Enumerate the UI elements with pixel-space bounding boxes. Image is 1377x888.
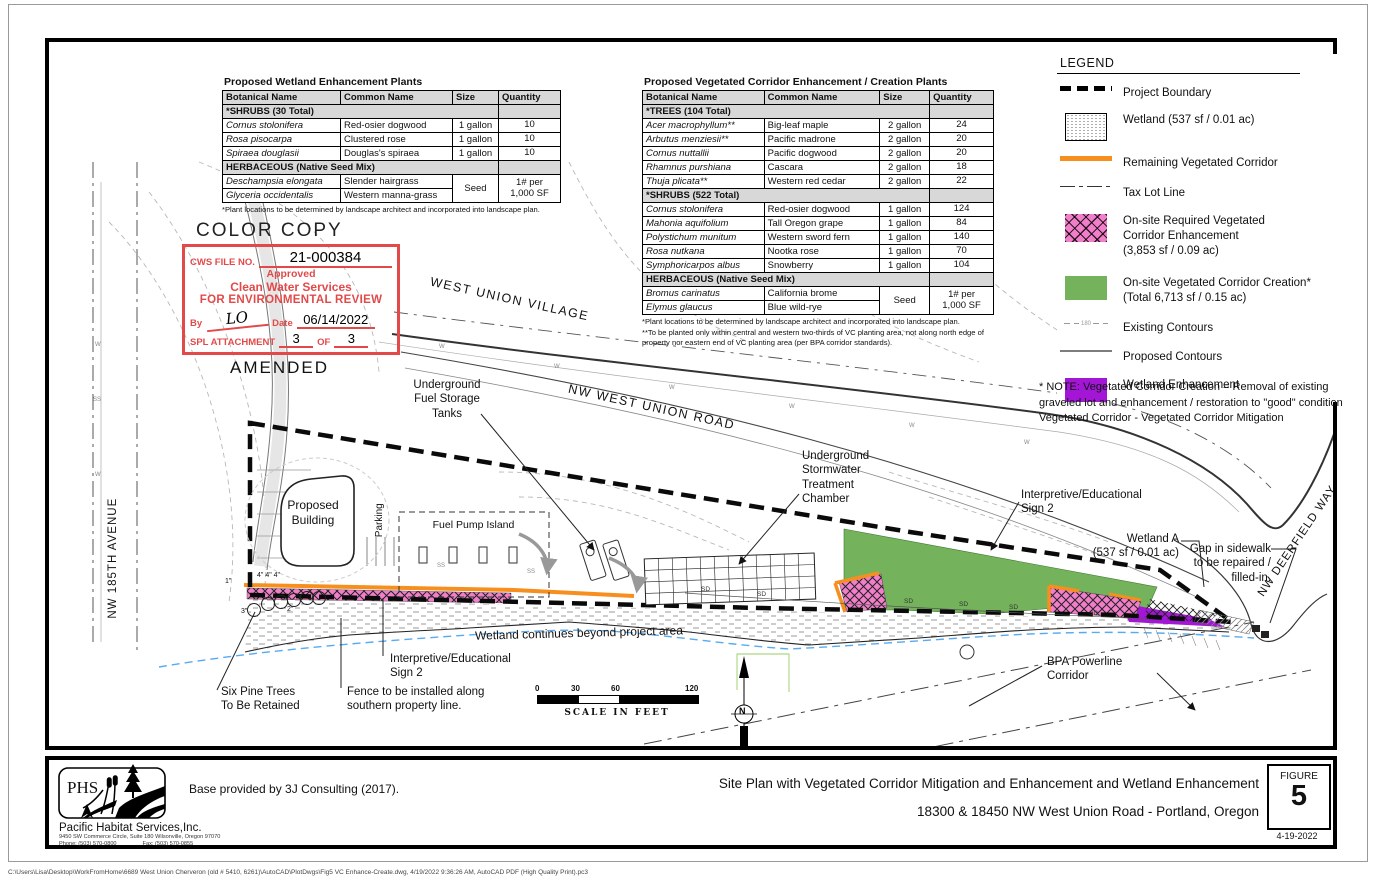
label-stormwater-chamber: Underground Stormwater Treatment Chamber: [802, 449, 912, 507]
plant-row: Rosa nutkanaNootka rose1 gallon70: [643, 245, 994, 259]
north-arrow: [731, 656, 757, 746]
plant-quantity: 70: [930, 245, 994, 259]
wetland-plants-panel: Proposed Wetland Enhancement Plants Bota…: [222, 76, 567, 214]
plant-size: 2 gallon: [880, 175, 930, 189]
plant-quantity: 18: [930, 161, 994, 175]
plant-quantity: 10: [499, 147, 561, 161]
column-header: Quantity: [499, 91, 561, 105]
common-name: Snowberry: [764, 259, 880, 273]
legend-item: Project Boundary: [1057, 86, 1362, 101]
cws-file-label: CWS FILE NO.: [190, 257, 255, 268]
legend-item-label: Remaining Vegetated Corridor: [1123, 156, 1278, 171]
plan-marker-ss: SS: [93, 397, 101, 403]
column-header: Botanical Name: [223, 91, 341, 105]
proposed-contours-swatch: [1057, 350, 1115, 352]
legend-item: On-site Required Vegetated Corridor Enha…: [1057, 214, 1362, 259]
stamp-agency: Clean Water Services: [190, 281, 392, 294]
scale-bar: 0 30 60 120 SCALE IN FEET: [537, 684, 707, 724]
botanical-name: Cornus stolonifera: [223, 119, 341, 133]
plotted-drawing-page: Underground Fuel Storage Tanks NW WEST U…: [0, 0, 1377, 888]
section-spacer: [930, 273, 994, 287]
column-header: Common Name: [341, 91, 453, 105]
fuel-pumps: [419, 547, 517, 563]
tax-lot-swatch: [1057, 186, 1115, 188]
scale-tick: 0: [535, 684, 539, 693]
column-header: Size: [453, 91, 499, 105]
plant-row: Arbutus menziesii**Pacific madrone2 gall…: [643, 133, 994, 147]
plan-marker-w: W: [1024, 440, 1030, 446]
plant-size: 2 gallon: [880, 119, 930, 133]
legend-title: LEGEND: [1057, 54, 1300, 74]
plant-quantity: 1# per 1,000 SF: [930, 287, 994, 315]
contour-elevation-label: 180: [1081, 321, 1091, 327]
drawing-frame: Underground Fuel Storage Tanks NW WEST U…: [45, 38, 1337, 750]
common-name: Blue wild-rye: [764, 301, 880, 315]
common-name: Nootka rose: [764, 245, 880, 259]
botanical-name: Arbutus menziesii**: [643, 133, 765, 147]
plant-row: Cornus stoloniferaRed-osier dogwood1 gal…: [643, 203, 994, 217]
table-footnote: *Plant locations to be determined by lan…: [222, 205, 567, 214]
label-sign2-east: Interpretive/Educational Sign 2: [1021, 488, 1186, 517]
common-name: Douglas's spiraea: [341, 147, 453, 161]
label-bpa-powerline: BPA Powerline Corridor: [1047, 655, 1122, 684]
figure-box: FIGURE 5: [1267, 764, 1331, 830]
color-copy-label: COLOR COPY: [196, 220, 400, 242]
plant-row: Thuja plicata**Western red cedar2 gallon…: [643, 175, 994, 189]
table-footnote: *Plant locations to be determined by lan…: [642, 317, 994, 326]
title-block: PHS Pacific Habitat Services,Inc. 9450 S…: [45, 756, 1337, 849]
attachment-number: 3: [279, 331, 313, 348]
plant-row: Rosa pisocarpaClustered rose1 gallon10: [223, 133, 561, 147]
common-name: Western manna-grass: [341, 189, 453, 203]
remaining-vc-swatch: [1057, 156, 1115, 161]
plant-size: 2 gallon: [880, 147, 930, 161]
plant-row: Cornus nuttalliiPacific dogwood2 gallon2…: [643, 147, 994, 161]
botanical-name: Mahonia aquifolium: [643, 217, 765, 231]
common-name: Slender hairgrass: [341, 175, 453, 189]
plant-size: 2 gallon: [880, 133, 930, 147]
legend-item-label: Tax Lot Line: [1123, 186, 1185, 201]
vc-enhancement-swatch: [1057, 214, 1115, 242]
legend-item: Proposed Contours: [1057, 350, 1362, 365]
plant-size: 2 gallon: [880, 161, 930, 175]
legend-panel: LEGEND Project BoundaryWetland (537 sf /…: [1057, 54, 1362, 402]
table-footnote: **To be planted only within central and …: [642, 328, 994, 347]
botanical-name: Rosa pisocarpa: [223, 133, 341, 147]
scale-caption: SCALE IN FEET: [537, 708, 697, 718]
plan-marker-w: W: [95, 342, 101, 348]
section-row: *SHRUBS (522 Total): [643, 189, 994, 203]
plan-marker-sd: SD: [1009, 604, 1018, 611]
legend-item: On-site Vegetated Corridor Creation* (To…: [1057, 276, 1362, 306]
plan-marker-w: W: [439, 344, 445, 350]
company-address: 9450 SW Commerce Circle, Suite 180 Wilso…: [59, 834, 220, 840]
by-label: By: [190, 318, 202, 329]
plan-marker-ss: SS: [437, 563, 445, 569]
label-fuel-pump-island: Fuel Pump Island: [401, 519, 546, 532]
plant-row: Symphoricarpos albusSnowberry1 gallon104: [643, 259, 994, 273]
plant-quantity: 104: [930, 259, 994, 273]
plan-marker-w: W: [789, 404, 795, 410]
plant-row: Bromus carinatusCalifornia bromeSeed1# p…: [643, 287, 994, 301]
figure-date: 4-19-2022: [1263, 831, 1331, 841]
common-name: Cascara: [764, 161, 880, 175]
plan-marker-w: W: [669, 385, 675, 391]
legend-item: 180Existing Contours: [1057, 321, 1362, 336]
common-name: Big-leaf maple: [764, 119, 880, 133]
section-label: *SHRUBS (30 Total): [223, 105, 499, 119]
label-fence-note: Fence to be installed along southern pro…: [347, 685, 484, 714]
legend-item: Tax Lot Line: [1057, 186, 1362, 201]
plant-row: Mahonia aquifoliumTall Oregon grape1 gal…: [643, 217, 994, 231]
plant-size: 1 gallon: [880, 231, 930, 245]
section-row: *SHRUBS (30 Total): [223, 105, 561, 119]
section-row: *TREES (104 Total): [643, 105, 994, 119]
label-six-pine-trees: Six Pine Trees To Be Retained: [221, 685, 300, 714]
header-row: Botanical NameCommon NameSizeQuantity: [643, 91, 994, 105]
company-fax: Fax: (503) 570-0855: [143, 841, 194, 847]
plant-size: 1 gallon: [453, 119, 499, 133]
plant-quantity: 20: [930, 147, 994, 161]
plant-size: 1 gallon: [453, 133, 499, 147]
wetland-plants-table: Botanical NameCommon NameSizeQuantity*SH…: [222, 90, 561, 203]
cws-stamp-box: CWS FILE NO. 21-000384 Approved Clean Wa…: [182, 244, 400, 355]
common-name: Western red cedar: [764, 175, 880, 189]
sheet-title: Site Plan with Vegetated Corridor Mitiga…: [669, 770, 1259, 827]
section-spacer: [499, 161, 561, 175]
plan-marker-w: W: [95, 472, 101, 478]
section-row: HERBACEOUS (Native Seed Mix): [223, 161, 561, 175]
wetland-swatch: [1057, 113, 1115, 141]
company-name: Pacific Habitat Services,Inc.: [59, 822, 202, 834]
common-name: Pacific dogwood: [764, 147, 880, 161]
section-spacer: [930, 105, 994, 119]
plan-marker-sd: SD: [904, 598, 913, 605]
plan-marker-1: 1": [225, 578, 231, 585]
botanical-name: Deschampsia elongata: [223, 175, 341, 189]
botanical-name: Cornus stolonifera: [643, 203, 765, 217]
plant-row: Deschampsia elongataSlender hairgrassSee…: [223, 175, 561, 189]
botanical-name: Elymus glaucus: [643, 301, 765, 315]
retaining-blocks: [1252, 625, 1269, 638]
plan-marker-w: W: [554, 364, 560, 370]
plan-marker-sd: SD: [959, 601, 968, 608]
botanical-name: Thuja plicata**: [643, 175, 765, 189]
plant-quantity: 22: [930, 175, 994, 189]
legend-item-label: Wetland (537 sf / 0.01 ac): [1123, 113, 1254, 128]
legend-item-label: On-site Required Vegetated Corridor Enha…: [1123, 214, 1265, 259]
plant-quantity: 140: [930, 231, 994, 245]
existing-contours-swatch: 180: [1057, 321, 1115, 327]
scale-tick: 120: [685, 684, 698, 693]
sheet-title-line2: 18300 & 18450 NW West Union Road - Portl…: [669, 798, 1259, 826]
plant-size: Seed: [453, 175, 499, 203]
botanical-name: Acer macrophyllum**: [643, 119, 765, 133]
company-phone: Phone: (503) 570-0800: [59, 841, 117, 847]
legend-item-label: On-site Vegetated Corridor Creation* (To…: [1123, 276, 1311, 306]
attachment-total: 3: [334, 331, 368, 348]
plant-row: Rhamnus purshianaCascara2 gallon18: [643, 161, 994, 175]
plan-marker-2: 2": [287, 606, 293, 613]
company-phone-fax: Phone: (503) 570-0800 Fax: (503) 570-085…: [59, 841, 193, 847]
sheet-title-line1: Site Plan with Vegetated Corridor Mitiga…: [669, 770, 1259, 798]
legend-item-label: Existing Contours: [1123, 321, 1213, 336]
plant-quantity: 24: [930, 119, 994, 133]
label-proposed-building: Proposed Building: [262, 498, 364, 528]
plant-quantity: 1# per 1,000 SF: [499, 175, 561, 203]
plant-size: 1 gallon: [880, 203, 930, 217]
label-nw-185th-avenue: NW 185TH AVENUE: [106, 488, 120, 628]
scale-tick: 60: [611, 684, 620, 693]
plant-quantity: 10: [499, 119, 561, 133]
column-header: Quantity: [930, 91, 994, 105]
stamp-approved: Approved: [190, 269, 392, 281]
cws-file-number: 21-000384: [259, 249, 392, 268]
approval-stamp: COLOR COPY CWS FILE NO. 21-000384 Approv…: [182, 220, 400, 378]
figure-number: 5: [1269, 782, 1329, 811]
scale-tick: 30: [571, 684, 580, 693]
vc-plants-table: Botanical NameCommon NameSizeQuantity*TR…: [642, 90, 994, 315]
label-sidewalk-gap: Gap in sidewalk to be repaired / filled-…: [1173, 542, 1271, 585]
plan-marker-444: 4" 4" 4": [257, 572, 280, 579]
label-wetland-a: Wetland A (537 sf / 0.01 ac): [1032, 532, 1179, 561]
section-label: *SHRUBS (522 Total): [643, 189, 930, 203]
common-name: Clustered rose: [341, 133, 453, 147]
common-name: California brome: [764, 287, 880, 301]
plant-size: Seed: [880, 287, 930, 315]
traffic-arrows: [519, 534, 637, 590]
section-label: *TREES (104 Total): [643, 105, 930, 119]
legend-item-label: Proposed Contours: [1123, 350, 1222, 365]
common-name: Western sword fern: [764, 231, 880, 245]
plan-marker-sd: SD: [1089, 610, 1098, 617]
table-title: Proposed Vegetated Corridor Enhancement …: [644, 76, 994, 88]
legend-item-label: Project Boundary: [1123, 86, 1211, 101]
botanical-name: Cornus nuttallii: [643, 147, 765, 161]
plant-size: 1 gallon: [880, 217, 930, 231]
phs-abbr: PHS: [67, 778, 98, 798]
common-name: Tall Oregon grape: [764, 217, 880, 231]
base-note: Base provided by 3J Consulting (2017).: [189, 782, 399, 796]
column-header: Size: [880, 91, 930, 105]
table-title: Proposed Wetland Enhancement Plants: [224, 76, 567, 88]
plant-quantity: 84: [930, 217, 994, 231]
plan-marker-sd: SD: [701, 586, 710, 593]
plant-size: 1 gallon: [880, 245, 930, 259]
botanical-name: Rosa nutkana: [643, 245, 765, 259]
plan-marker-ss: SS: [527, 569, 535, 575]
botanical-name: Polystichum munitum: [643, 231, 765, 245]
legend-item: Remaining Vegetated Corridor: [1057, 156, 1362, 171]
botanical-name: Rhamnus purshiana: [643, 161, 765, 175]
manhole: [960, 645, 974, 659]
spl-attachment-label: SPL ATTACHMENT: [190, 337, 275, 348]
of-label: OF: [317, 337, 330, 348]
botanical-name: Bromus carinatus: [643, 287, 765, 301]
legend-item: Wetland (537 sf / 0.01 ac): [1057, 113, 1362, 141]
plant-quantity: 10: [499, 133, 561, 147]
botanical-name: Glyceria occidentalis: [223, 189, 341, 203]
plant-row: Polystichum munitumWestern sword fern1 g…: [643, 231, 994, 245]
common-name: Pacific madrone: [764, 133, 880, 147]
stamp-purpose: FOR ENVIRONMENTAL REVIEW: [190, 294, 392, 307]
plant-row: Spiraea douglasiiDouglas's spiraea1 gall…: [223, 147, 561, 161]
plan-marker-n: N: [739, 706, 746, 716]
label-fuel-storage-tanks: Underground Fuel Storage Tanks: [387, 378, 507, 421]
plan-marker-w: W: [909, 423, 915, 429]
common-name: Red-osier dogwood: [764, 203, 880, 217]
plant-quantity: 20: [930, 133, 994, 147]
date-label: Date: [272, 318, 293, 329]
vc-creation-swatch: [1057, 276, 1115, 300]
section-label: HERBACEOUS (Native Seed Mix): [223, 161, 499, 175]
vc-plants-panel: Proposed Vegetated Corridor Enhancement …: [642, 76, 994, 347]
common-name: Red-osier dogwood: [341, 119, 453, 133]
plant-row: Cornus stoloniferaRed-osier dogwood1 gal…: [223, 119, 561, 133]
project-boundary-swatch: [1057, 86, 1115, 91]
section-label: HERBACEOUS (Native Seed Mix): [643, 273, 930, 287]
label-parking: Parking: [374, 490, 387, 550]
column-header: Common Name: [764, 91, 880, 105]
scale-bar-graphic: [537, 695, 699, 704]
plant-size: 1 gallon: [453, 147, 499, 161]
signature: LO: [205, 306, 269, 332]
vc-creation-note: * NOTE: Vegetated Corridor Creation = Re…: [1039, 380, 1351, 427]
legend-items: Project BoundaryWetland (537 sf / 0.01 a…: [1057, 86, 1362, 402]
header-row: Botanical NameCommon NameSizeQuantity: [223, 91, 561, 105]
botanical-name: Spiraea douglasii: [223, 147, 341, 161]
botanical-name: Symphoricarpos albus: [643, 259, 765, 273]
plant-quantity: 124: [930, 203, 994, 217]
plan-marker-3: 3": [241, 608, 247, 615]
amended-label: AMENDED: [230, 358, 400, 378]
plan-marker-sd: SD: [757, 591, 766, 598]
stamp-date: 06/14/2022: [297, 312, 375, 329]
stormwater-chamber-grid: [644, 553, 816, 605]
section-spacer: [930, 189, 994, 203]
plant-size: 1 gallon: [880, 259, 930, 273]
plant-row: Acer macrophyllum**Big-leaf maple2 gallo…: [643, 119, 994, 133]
section-row: HERBACEOUS (Native Seed Mix): [643, 273, 994, 287]
section-spacer: [499, 105, 561, 119]
plot-file-path: C:\Users\Lisa\Desktop\WorkFromHome\6689 …: [8, 869, 588, 876]
label-sign2-west: Interpretive/Educational Sign 2: [390, 652, 511, 681]
column-header: Botanical Name: [643, 91, 765, 105]
